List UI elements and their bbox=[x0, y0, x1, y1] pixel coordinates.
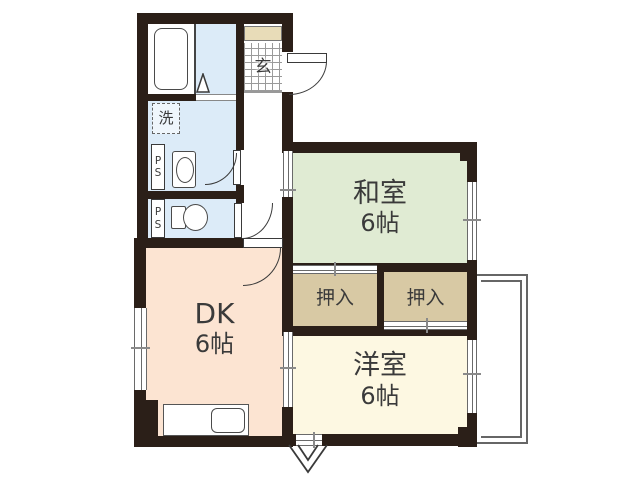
wall bbox=[282, 142, 477, 153]
washbasin-bowl bbox=[176, 157, 194, 183]
toilet-door-leaf bbox=[234, 203, 242, 238]
window-washitsu-right bbox=[467, 182, 477, 260]
wall bbox=[467, 153, 477, 182]
wall bbox=[137, 13, 293, 24]
window-tick bbox=[334, 262, 336, 276]
balcony-inner-line bbox=[481, 280, 522, 282]
window-tick bbox=[426, 318, 428, 333]
balcony-inner-line bbox=[481, 436, 522, 438]
wall bbox=[134, 238, 243, 248]
wall bbox=[148, 191, 244, 199]
wall bbox=[322, 434, 477, 446]
wall bbox=[148, 94, 196, 101]
wall bbox=[236, 24, 244, 150]
wall bbox=[137, 13, 148, 248]
bathtub bbox=[154, 28, 188, 90]
closet-left-label: 押入 bbox=[293, 289, 377, 308]
wall bbox=[282, 407, 293, 447]
wall bbox=[377, 272, 384, 326]
pipe-space-bottom: PS bbox=[151, 199, 165, 238]
laundry-space: 洗 bbox=[152, 103, 180, 134]
genkan-tile-floor: 玄 bbox=[244, 43, 282, 91]
window-western-right bbox=[467, 340, 477, 413]
wall bbox=[134, 436, 293, 447]
genkan-step-line bbox=[244, 91, 282, 93]
pipe-space-label: PS bbox=[154, 155, 163, 179]
western-room-size: 6帖 bbox=[293, 384, 467, 408]
dk-name: DK bbox=[146, 300, 283, 328]
pipe-space-label: PS bbox=[154, 206, 163, 230]
wall bbox=[282, 13, 293, 52]
balcony-outline bbox=[526, 274, 528, 444]
wall bbox=[467, 272, 477, 326]
balcony-inner-line bbox=[520, 280, 522, 438]
folding-door-icon bbox=[196, 73, 210, 94]
sliding-door-dk-western bbox=[283, 332, 293, 407]
kitchen-sink bbox=[211, 408, 245, 433]
bath-doorway bbox=[196, 94, 236, 101]
washitsu-size: 6帖 bbox=[293, 211, 467, 235]
balcony-outline bbox=[477, 274, 528, 276]
washitsu-name: 和室 bbox=[293, 180, 467, 207]
wall bbox=[134, 243, 146, 308]
balcony-outline bbox=[477, 442, 528, 444]
laundry-label: 洗 bbox=[158, 111, 173, 126]
western-room-name: 洋室 bbox=[293, 352, 467, 379]
entrance-door-swing bbox=[289, 61, 327, 95]
floor-plan: 玄 洗 PS PS bbox=[0, 0, 640, 480]
toilet-bowl bbox=[183, 204, 208, 231]
shoe-cabinet bbox=[244, 26, 282, 41]
genkan-label: 玄 bbox=[255, 59, 272, 76]
direction-marker-icon bbox=[286, 444, 330, 475]
dk-size: 6帖 bbox=[146, 332, 283, 356]
pipe-space-top: PS bbox=[151, 144, 165, 190]
dk-door-leaf bbox=[243, 238, 283, 248]
closet-right-label: 押入 bbox=[384, 289, 467, 308]
